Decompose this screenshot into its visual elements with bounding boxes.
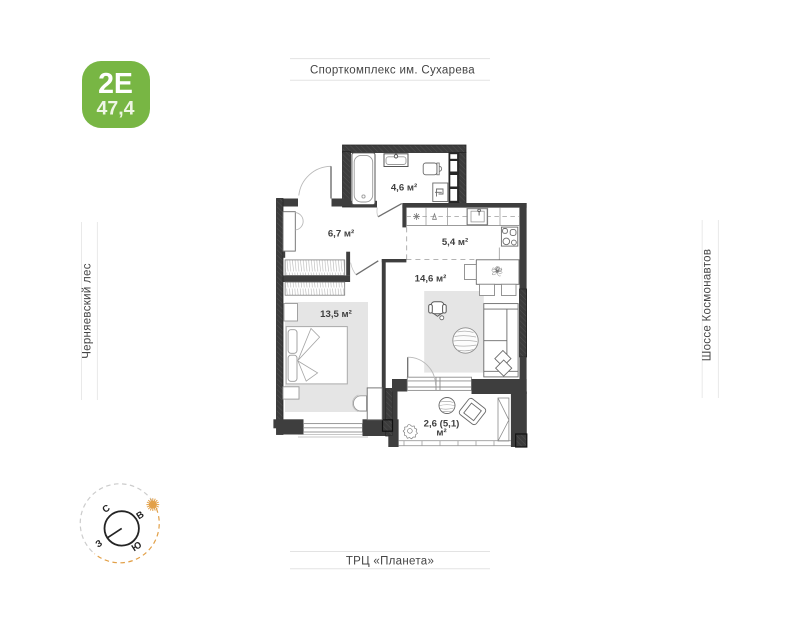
svg-text:4,6 м²: 4,6 м² <box>391 183 417 194</box>
svg-text:6,7 м²: 6,7 м² <box>328 228 354 239</box>
svg-text:47,4: 47,4 <box>97 98 135 120</box>
svg-text:13,5 м²: 13,5 м² <box>320 309 352 320</box>
svg-text:2Е: 2Е <box>98 68 133 100</box>
svg-text:5,4 м²: 5,4 м² <box>442 237 468 248</box>
svg-text:14,6 м²: 14,6 м² <box>415 273 447 284</box>
svg-text:Шоссе Космонавтов: Шоссе Космонавтов <box>701 249 713 362</box>
svg-text:Черняевский лес: Черняевский лес <box>82 263 94 359</box>
svg-text:м²: м² <box>436 428 446 439</box>
svg-text:Спорткомплекс им. Сухарева: Спорткомплекс им. Сухарева <box>310 65 475 77</box>
svg-text:ТРЦ «Планета»: ТРЦ «Планета» <box>346 556 434 568</box>
